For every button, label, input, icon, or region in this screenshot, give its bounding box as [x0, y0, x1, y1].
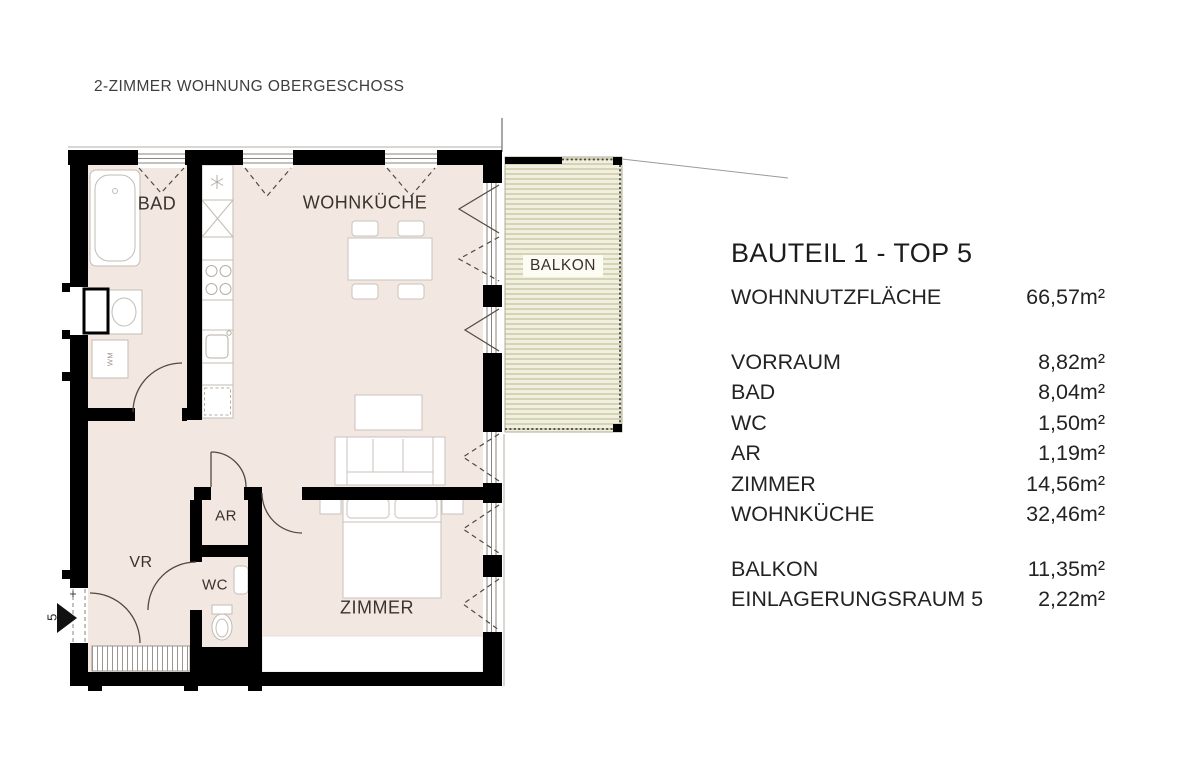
- extra-area-list: BALKON 11,35m² EINLAGERUNGSRAUM 5 2,22m²: [731, 554, 1105, 615]
- entrance-markers: [57, 589, 85, 642]
- unit-title: BAUTEIL 1 - TOP 5: [731, 238, 1105, 269]
- zimmer-south-band: [262, 636, 483, 672]
- total-area-row: WOHNNUTZFLÄCHE 66,57m²: [731, 282, 1105, 313]
- room-value: 8,82m²: [1038, 347, 1105, 378]
- toilet: [212, 614, 232, 640]
- room-label-wohnkueche: WOHNKÜCHE: [303, 193, 428, 214]
- room-name: WOHNKÜCHE: [731, 499, 874, 530]
- pillow: [347, 499, 389, 518]
- sideboard: [355, 395, 422, 430]
- chair: [352, 284, 378, 299]
- chair: [398, 221, 424, 236]
- dining-table: [348, 238, 432, 280]
- toilet-tank: [212, 605, 232, 614]
- entrance-arrow-icon: [57, 603, 77, 633]
- area-row: VORRAUM 8,82m²: [731, 347, 1105, 378]
- room-name: AR: [731, 438, 761, 469]
- shaft: [84, 289, 108, 333]
- room-label-bad: BAD: [138, 194, 177, 215]
- area-row: BALKON 11,35m²: [731, 554, 1105, 585]
- total-area-value: 66,57m²: [1026, 282, 1105, 313]
- pillow: [395, 499, 437, 518]
- kitchen-counter: [202, 165, 233, 418]
- area-row: ZIMMER 14,56m²: [731, 469, 1105, 500]
- area-row: BAD 8,04m²: [731, 377, 1105, 408]
- area-row: EINLAGERUNGSRAUM 5 2,22m²: [731, 584, 1105, 615]
- area-row: AR 1,19m²: [731, 438, 1105, 469]
- chair: [352, 221, 378, 236]
- chair: [398, 284, 424, 299]
- bathtub: [90, 170, 140, 266]
- room-value: 2,22m²: [1038, 584, 1105, 615]
- room-name: EINLAGERUNGSRAUM 5: [731, 584, 983, 615]
- room-name: BAD: [731, 377, 775, 408]
- area-row: WC 1,50m²: [731, 408, 1105, 439]
- room-label-ar: AR: [215, 508, 237, 525]
- washing-machine-label: WM: [106, 352, 115, 366]
- entry-number-label: 5: [45, 613, 60, 621]
- balcony-leader-line: [622, 159, 788, 178]
- room-value: 8,04m²: [1038, 377, 1105, 408]
- sofa: [335, 437, 445, 485]
- room-value: 1,19m²: [1038, 438, 1105, 469]
- north-cross-icon: [70, 591, 76, 597]
- bathroom-sink: [106, 290, 142, 334]
- room-value: 11,35m²: [1028, 554, 1105, 585]
- balcony: [505, 157, 622, 432]
- room-value: 1,50m²: [1038, 408, 1105, 439]
- room-value: 32,46m²: [1026, 499, 1105, 530]
- room-label-zimmer: ZIMMER: [340, 598, 414, 619]
- total-area-label: WOHNNUTZFLÄCHE: [731, 282, 941, 313]
- wc-sink: [234, 566, 248, 594]
- room-value: 14,56m²: [1026, 469, 1105, 500]
- room-label-balkon: BALKON: [523, 255, 603, 277]
- area-row: WOHNKÜCHE 32,46m²: [731, 499, 1105, 530]
- room-name: BALKON: [731, 554, 818, 585]
- info-panel: BAUTEIL 1 - TOP 5 WOHNNUTZFLÄCHE 66,57m²…: [731, 238, 1105, 615]
- room-name: VORRAUM: [731, 347, 841, 378]
- room-name: WC: [731, 408, 767, 439]
- room-label-vr: VR: [129, 554, 152, 572]
- floor-plan-page: 2-ZIMMER WOHNUNG OBERGESCHOSS: [0, 0, 1200, 773]
- room-name: ZIMMER: [731, 469, 816, 500]
- entry-wardrobe: [92, 646, 190, 671]
- room-list: VORRAUM 8,82m² BAD 8,04m² WC 1,50m² AR 1…: [731, 347, 1105, 530]
- room-label-wc: WC: [202, 577, 228, 594]
